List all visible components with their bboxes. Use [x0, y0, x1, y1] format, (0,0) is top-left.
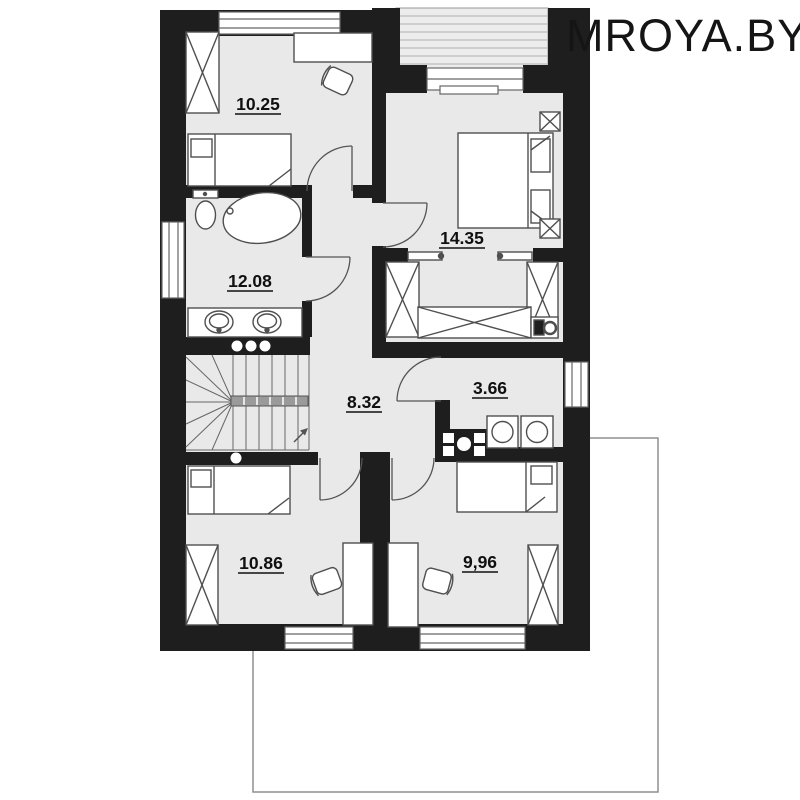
wall-bedroom2-top-right — [523, 65, 563, 93]
wardrobe — [186, 32, 219, 113]
watermark-text: MROYA.BY — [566, 10, 800, 62]
wall-bathroom-right-b — [302, 301, 312, 337]
nightstand — [540, 219, 560, 238]
wall-bedrooms-divider-upper — [360, 452, 390, 543]
floor-plan-page: 10.25 14.35 12.08 8.32 3.66 10.86 9,96 M… — [0, 0, 800, 800]
desk — [343, 543, 373, 625]
bed — [188, 134, 291, 186]
window-left — [162, 222, 184, 298]
label-bedroom-bottom-left: 10.86 — [239, 553, 283, 573]
counter-unit — [437, 429, 492, 460]
dryer — [521, 416, 553, 448]
wardrobe — [528, 545, 558, 625]
desk — [388, 543, 418, 627]
wall-bedroom1-stub — [353, 185, 372, 198]
wall-right — [563, 8, 590, 651]
label-bathroom: 12.08 — [228, 271, 272, 291]
washing-machine — [487, 416, 518, 448]
label-hallway: 8.32 — [347, 392, 381, 412]
desk — [294, 33, 372, 62]
floor-plan-svg: 10.25 14.35 12.08 8.32 3.66 10.86 9,96 — [0, 0, 800, 800]
small-sink-unit — [531, 317, 558, 338]
wardrobe — [386, 262, 419, 337]
double-sink-counter — [188, 308, 302, 337]
window-top — [219, 12, 340, 34]
window-bottom-right — [420, 627, 525, 649]
bed — [457, 462, 557, 512]
wall-bedroom2-top-left — [396, 65, 427, 93]
toilet — [193, 190, 218, 229]
bed — [188, 466, 290, 514]
nightstand — [540, 112, 560, 131]
label-laundry: 3.66 — [473, 378, 507, 398]
window-right — [565, 362, 588, 407]
window-bottom-left — [285, 627, 353, 649]
wall-dressing-top-left — [386, 248, 408, 262]
wall-bathroom-right-a — [302, 185, 312, 257]
wall-dressing-bottom — [372, 342, 563, 358]
double-bed — [458, 133, 553, 228]
wall-dressing-top-right — [533, 248, 563, 262]
balcony-door-sill — [427, 68, 523, 94]
wall-bedroom1-bedroom2 — [372, 36, 386, 203]
wall-hall-dressing — [372, 246, 386, 358]
clothes-rail — [498, 252, 533, 260]
clothes-rail — [408, 252, 444, 260]
wall-left — [160, 10, 186, 651]
label-bedroom-top-right: 14.35 — [440, 228, 484, 248]
label-bedroom-bottom-right: 9,96 — [463, 552, 497, 572]
wall-bedrooms-divider-lower — [373, 543, 388, 626]
balcony — [396, 8, 548, 72]
wardrobe — [186, 545, 218, 625]
label-bedroom-top-left: 10.25 — [236, 94, 280, 114]
low-cabinet — [418, 307, 531, 338]
